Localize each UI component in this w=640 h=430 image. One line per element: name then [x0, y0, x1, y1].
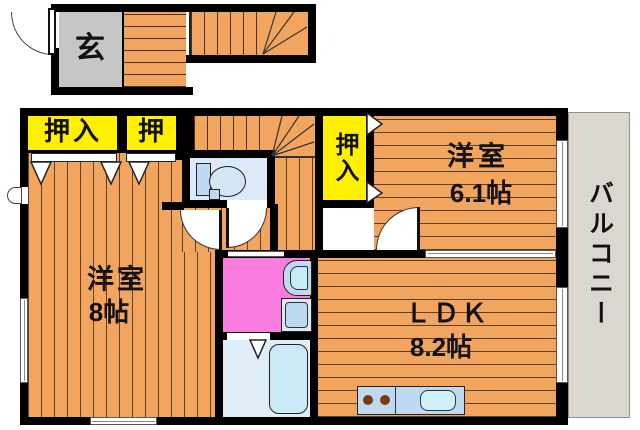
ldk-name: ＬＤＫ [405, 300, 489, 326]
closet-door-track [126, 153, 176, 162]
wall-segment [51, 4, 316, 12]
wall-segment [182, 150, 275, 158]
wall-segment [117, 112, 127, 153]
staircase-run2 [189, 12, 261, 55]
staircase-winder-1f [261, 12, 308, 55]
staircase-run1 [122, 12, 186, 87]
kitchen-counter-divider [395, 387, 396, 414]
closet-oshi-label: 押 [138, 118, 164, 144]
washbasin-icon [290, 266, 308, 290]
wall-segment [51, 87, 193, 95]
wall-segment [366, 116, 374, 204]
bedroom-8-name: 洋室 [87, 267, 147, 294]
bedroom-6-size: 6.1帖 [450, 180, 512, 206]
toilet-door-leaf [226, 208, 229, 248]
wall-segment [315, 116, 323, 255]
washroom-sliding-door [228, 251, 284, 257]
floor-plan: 玄 バルコニー 押入 押 押入 [0, 0, 640, 430]
bedroom-6-name: 洋室 [447, 144, 509, 171]
stove-burner-icon [363, 395, 373, 405]
bedroom-8-size: 8帖 [89, 299, 129, 325]
closet-side-label: 押入 [332, 132, 356, 184]
sliding-door-line [428, 253, 553, 254]
wall-segment [162, 202, 184, 210]
wall-segment [186, 55, 316, 63]
stove-burner-icon [380, 395, 390, 405]
bedroom-6-door-leaf [417, 207, 420, 250]
window-line [24, 300, 25, 381]
window-line [562, 142, 563, 226]
vent-icon [7, 187, 22, 204]
wall-segment [20, 108, 568, 116]
wall-segment [315, 200, 374, 208]
ldk-size: 8.2帖 [410, 334, 472, 360]
washing-machine-icon [285, 302, 308, 328]
doorway-area [323, 208, 374, 250]
closet-oshiire-label: 押入 [44, 118, 102, 144]
entrance-door-leaf [48, 8, 56, 55]
balcony-label: バルコニー [587, 180, 612, 330]
toilet-icon [209, 189, 220, 200]
window-line [562, 289, 563, 381]
window-line [92, 421, 155, 422]
bathroom-doorway [227, 333, 270, 340]
bathtub-icon [269, 344, 308, 414]
entrance-label: 玄 [75, 34, 105, 64]
toilet-doorway [227, 200, 267, 208]
bedroom-8-door-leaf [219, 210, 222, 250]
kitchen-sink-icon [420, 390, 456, 411]
wall-segment [270, 204, 278, 252]
stair-edge-line [270, 156, 315, 158]
sliding-door [425, 250, 556, 258]
entrance-door-swing-arc [11, 12, 53, 55]
wall-segment [313, 250, 425, 258]
staircase-winder-2f [270, 116, 315, 157]
closet-door-track [31, 153, 117, 162]
